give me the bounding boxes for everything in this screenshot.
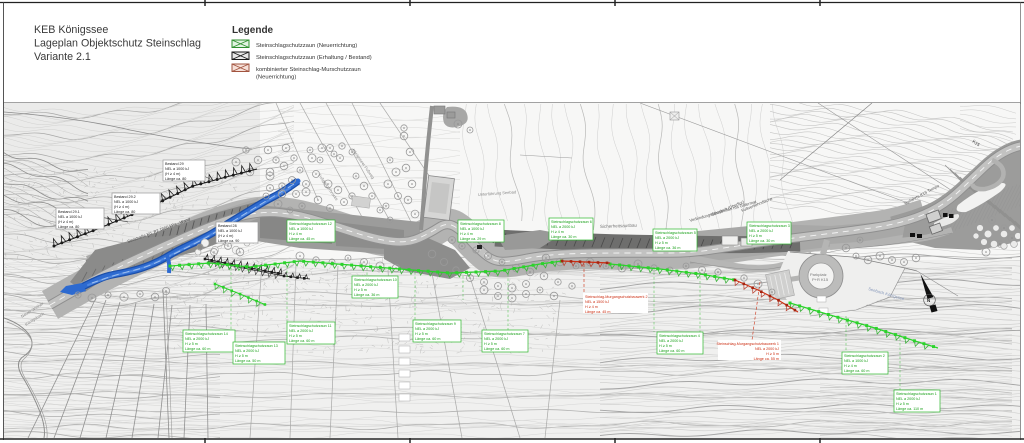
svg-text:NEL a 2000 kJ: NEL a 2000 kJ (235, 349, 259, 353)
svg-text:Bestand 28: Bestand 28 (218, 224, 237, 228)
svg-text:Bestand 29: Bestand 29 (165, 162, 184, 166)
svg-text:NEL a 2000 kJ: NEL a 2000 kJ (415, 327, 439, 331)
svg-text:H ≥ 5 m: H ≥ 5 m (484, 342, 497, 346)
svg-text:H ≥ 4 m: H ≥ 4 m (585, 305, 598, 309)
svg-text:Länge ca. 60 m: Länge ca. 60 m (484, 347, 509, 351)
svg-text:Länge ca. 30 m: Länge ca. 30 m (551, 235, 576, 239)
svg-text:Steinschlagschutzzaun 3: Steinschlagschutzzaun 3 (749, 224, 790, 228)
svg-text:Steinschlagschutzzaun (Neuerri: Steinschlagschutzzaun (Neuerrichtung) (256, 43, 357, 49)
svg-text:Steinschlagschutzzaun 11: Steinschlagschutzzaun 11 (289, 324, 332, 328)
svg-text:NEL a 2000 kJ: NEL a 2000 kJ (551, 225, 575, 229)
svg-text:P+R K15: P+R K15 (812, 277, 829, 282)
svg-text:Steinschlagschutzzaun 5: Steinschlagschutzzaun 5 (655, 231, 696, 235)
svg-text:Steinschlagschutzzaun 10: Steinschlagschutzzaun 10 (354, 278, 397, 282)
svg-text:Steinschlagschutzzaun 4: Steinschlagschutzzaun 4 (659, 334, 700, 338)
svg-text:Steinschlagschutzzaun 7: Steinschlagschutzzaun 7 (484, 332, 525, 336)
svg-text:H ≥ 5 m: H ≥ 5 m (766, 352, 779, 356)
svg-text:Länge ca. 60 m: Länge ca. 60 m (415, 337, 440, 341)
svg-text:Variante 2.1: Variante 2.1 (34, 51, 91, 63)
svg-text:kombinierter Steinschlag-Mursc: kombinierter Steinschlag-Murschutzzaun (256, 67, 361, 73)
svg-text:NEL a 1000 kJ: NEL a 1000 kJ (58, 215, 82, 219)
svg-text:KEB Königssee: KEB Königssee (34, 24, 108, 36)
svg-text:Steinschlagschutzzaun 1: Steinschlagschutzzaun 1 (896, 392, 937, 396)
svg-text:Steinschlagschutzzaun 8: Steinschlagschutzzaun 8 (460, 222, 501, 226)
svg-text:Länge ca. 90: Länge ca. 90 (218, 239, 239, 243)
svg-text:(H ≥ 4 m): (H ≥ 4 m) (165, 172, 180, 176)
svg-text:Länge ca. 55 m: Länge ca. 55 m (754, 357, 779, 361)
svg-text:H ≥ 4 m: H ≥ 4 m (551, 230, 564, 234)
svg-text:Länge ca. 60 m: Länge ca. 60 m (844, 369, 869, 373)
svg-text:Länge ca. 60 m: Länge ca. 60 m (289, 339, 314, 343)
svg-text:Länge ca. 45 m: Länge ca. 45 m (585, 310, 610, 314)
svg-text:Bestand 29.1: Bestand 29.1 (58, 210, 80, 214)
svg-text:NEL a 2000 kJ: NEL a 2000 kJ (655, 236, 679, 240)
svg-text:H ≥ 5 m: H ≥ 5 m (289, 334, 302, 338)
svg-text:Länge ca. 30 m: Länge ca. 30 m (749, 239, 774, 243)
svg-text:Länge ca. 80: Länge ca. 80 (114, 210, 135, 214)
svg-text:H ≥ 5 m: H ≥ 5 m (235, 354, 248, 358)
svg-text:Steinschlagschutzzaun 9: Steinschlagschutzzaun 9 (415, 322, 456, 326)
svg-text:Länge ca. 50 m: Länge ca. 50 m (235, 359, 260, 363)
svg-text:NEL a 1000 kJ: NEL a 1000 kJ (218, 229, 242, 233)
svg-text:Länge ca. 60 m: Länge ca. 60 m (659, 349, 684, 353)
svg-text:NEL a 2000 kJ: NEL a 2000 kJ (289, 329, 313, 333)
svg-text:NEL a 1000 kJ: NEL a 1000 kJ (844, 359, 868, 363)
svg-text:Steinschlagschutzzaun 13: Steinschlagschutzzaun 13 (235, 344, 278, 348)
svg-text:NEL a 2000 kJ: NEL a 2000 kJ (185, 337, 209, 341)
svg-text:NEL a 2000 kJ: NEL a 2000 kJ (749, 229, 773, 233)
svg-text:Länge ca. 80: Länge ca. 80 (58, 225, 79, 229)
svg-text:NEL a 1000 kJ: NEL a 1000 kJ (460, 227, 484, 231)
svg-text:Steinschlag-Murgangschutzbauwe: Steinschlag-Murgangschutzbauwerk 1 (716, 342, 779, 346)
svg-text:H ≥ 4 m: H ≥ 4 m (460, 232, 473, 236)
svg-text:Steinschlagschutzzaun (Erhaltu: Steinschlagschutzzaun (Erhaltung / Besta… (256, 55, 372, 61)
svg-text:H ≥ 5 m: H ≥ 5 m (354, 288, 367, 292)
svg-text:(H ≥ 4 m): (H ≥ 4 m) (218, 234, 233, 238)
svg-text:Länge ca. 36 m: Länge ca. 36 m (354, 293, 379, 297)
svg-text:(H ≥ 4 m): (H ≥ 4 m) (58, 220, 73, 224)
svg-text:NEL a 2000 kJ: NEL a 2000 kJ (659, 339, 683, 343)
svg-text:NEL a 2000 kJ: NEL a 2000 kJ (354, 283, 378, 287)
svg-text:N: N (927, 298, 930, 303)
svg-text:NEL a 2000 kJ: NEL a 2000 kJ (484, 337, 508, 341)
svg-text:Steinschlag-Murgangschutzbauwe: Steinschlag-Murgangschutzbauwerk 2 (585, 295, 648, 299)
svg-text:NEL a 1500 kJ: NEL a 1500 kJ (585, 300, 609, 304)
svg-text:Bestand 29.2: Bestand 29.2 (114, 195, 136, 199)
svg-text:Steinschlagschutzzaun 6: Steinschlagschutzzaun 6 (551, 220, 592, 224)
svg-text:Länge ca. 110 m: Länge ca. 110 m (896, 407, 923, 411)
svg-text:H ≥ 4 m: H ≥ 4 m (844, 364, 857, 368)
svg-text:NEL a 2000 kJ: NEL a 2000 kJ (755, 347, 779, 351)
svg-text:H ≥ 5 m: H ≥ 5 m (655, 241, 668, 245)
svg-text:H ≥ 4 m: H ≥ 4 m (289, 232, 302, 236)
svg-text:NEL a 2000 kJ: NEL a 2000 kJ (896, 397, 920, 401)
svg-text:NEL a 1000 kJ: NEL a 1000 kJ (114, 200, 138, 204)
svg-text:Steinschlagschutzzaun 14: Steinschlagschutzzaun 14 (185, 332, 228, 336)
svg-text:H ≥ 5 m: H ≥ 5 m (415, 332, 428, 336)
svg-text:Länge ca. 36 m: Länge ca. 36 m (655, 246, 680, 250)
svg-text:(Neuerrichtung): (Neuerrichtung) (256, 75, 296, 81)
svg-text:Länge ca. 45 m: Länge ca. 45 m (289, 237, 314, 241)
svg-text:Steinschlagschutzzaun 2: Steinschlagschutzzaun 2 (844, 354, 885, 358)
svg-text:H ≥ 5 m: H ≥ 5 m (749, 234, 762, 238)
svg-text:Länge ca. 60 m: Länge ca. 60 m (185, 347, 210, 351)
svg-text:H ≥ 5 m: H ≥ 5 m (185, 342, 198, 346)
svg-text:Steinschlagschutzzaun 12: Steinschlagschutzzaun 12 (289, 222, 332, 226)
svg-text:H ≥ 5 m: H ≥ 5 m (896, 402, 909, 406)
svg-text:NEL a 1000 kJ: NEL a 1000 kJ (289, 227, 313, 231)
svg-text:Länge ca. 80: Länge ca. 80 (165, 177, 186, 181)
svg-text:Legende: Legende (232, 25, 274, 36)
svg-text:H ≥ 5 m: H ≥ 5 m (659, 344, 672, 348)
svg-text:Lageplan Objektschutz Steinsch: Lageplan Objektschutz Steinschlag (34, 38, 201, 50)
svg-text:NEL a 1000 kJ: NEL a 1000 kJ (165, 167, 189, 171)
svg-text:Länge ca. 29 m: Länge ca. 29 m (460, 237, 485, 241)
svg-text:(H ≥ 4 m): (H ≥ 4 m) (114, 205, 129, 209)
